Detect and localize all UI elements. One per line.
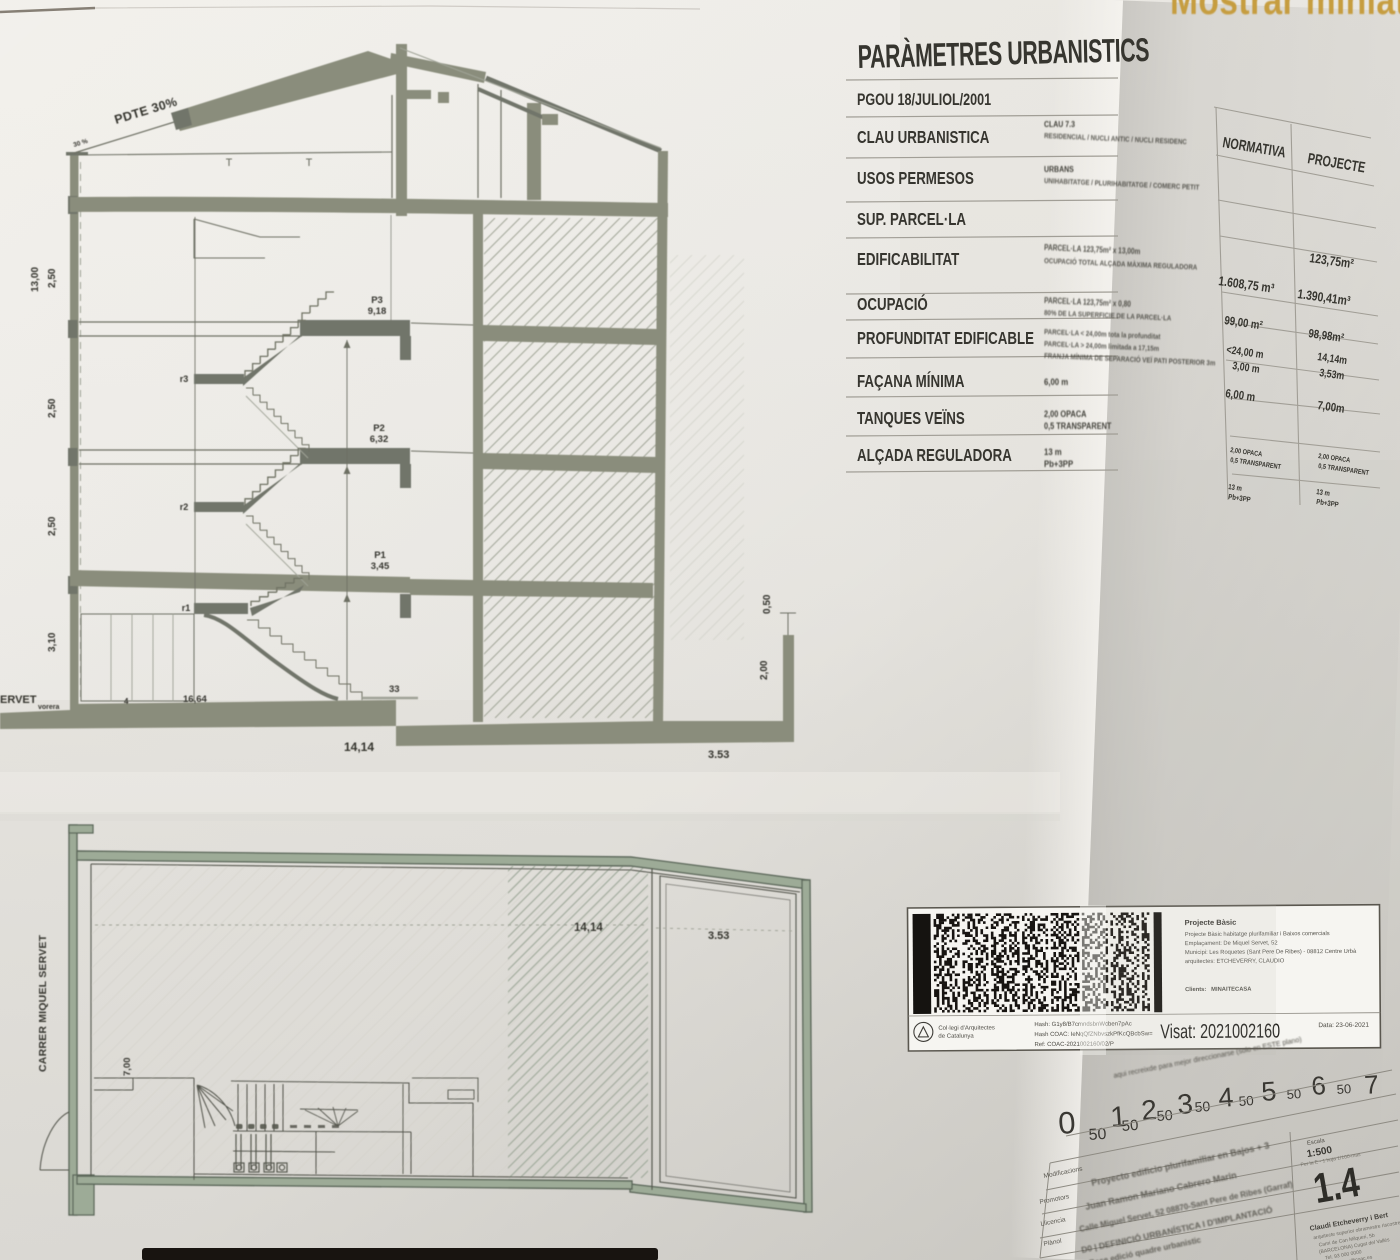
svg-text:P1: P1 xyxy=(374,550,386,561)
svg-text:OCUPACIÓ: OCUPACIÓ xyxy=(857,293,928,315)
svg-text:CLAU 7.3: CLAU 7.3 xyxy=(1044,119,1076,129)
svg-text:7,00: 7,00 xyxy=(122,1058,133,1077)
svg-text:SUP. PARCEL·LA: SUP. PARCEL·LA xyxy=(857,210,966,229)
svg-text:33: 33 xyxy=(389,684,400,695)
svg-text:Pb+3PP: Pb+3PP xyxy=(1044,458,1073,469)
svg-text:EDIFICABILITAT: EDIFICABILITAT xyxy=(857,250,960,269)
svg-text:14,14: 14,14 xyxy=(344,740,374,754)
svg-text:2,00 OPACA: 2,00 OPACA xyxy=(1044,409,1087,419)
svg-text:2,50: 2,50 xyxy=(47,516,58,536)
svg-text:16,64: 16,64 xyxy=(183,694,207,705)
svg-text:r2: r2 xyxy=(180,502,189,512)
svg-text:3: 3 xyxy=(1176,1088,1194,1120)
svg-text:6,00 m: 6,00 m xyxy=(1044,376,1068,387)
svg-text:Mostrar miniatu: Mostrar miniatu xyxy=(1170,0,1400,24)
svg-text:PROFUNDITAT EDIFICABLE: PROFUNDITAT EDIFICABLE xyxy=(857,329,1034,348)
svg-text:6,32: 6,32 xyxy=(370,434,389,445)
svg-text:ERVET: ERVET xyxy=(0,694,37,706)
svg-text:0,5 TRANSPARENT: 0,5 TRANSPARENT xyxy=(1044,421,1111,431)
svg-text:P3: P3 xyxy=(371,295,383,306)
svg-text:3,45: 3,45 xyxy=(371,561,390,572)
svg-text:2,00: 2,00 xyxy=(759,660,770,680)
svg-text:vorera: vorera xyxy=(38,704,60,711)
svg-text:FAÇANA MÍNIMA: FAÇANA MÍNIMA xyxy=(857,370,965,392)
svg-text:5: 5 xyxy=(1260,1076,1277,1107)
svg-text:2,50: 2,50 xyxy=(47,268,58,288)
svg-text:13,00: 13,00 xyxy=(30,267,41,292)
svg-text:14,14: 14,14 xyxy=(574,922,603,934)
svg-text:USOS PERMESOS: USOS PERMESOS xyxy=(857,169,974,188)
svg-text:1.4: 1.4 xyxy=(1310,1158,1363,1212)
svg-text:TANQUES VEÏNS: TANQUES VEÏNS xyxy=(857,408,965,428)
svg-text:4: 4 xyxy=(124,697,129,706)
svg-text:Data: 23-06-2021: Data: 23-06-2021 xyxy=(1318,1022,1369,1029)
svg-text:50: 50 xyxy=(1336,1081,1351,1097)
svg-text:Col·legi d'Arquitectes: Col·legi d'Arquitectes xyxy=(938,1025,995,1031)
svg-text:9,18: 9,18 xyxy=(368,306,387,317)
svg-text:PGOU 18/JULIOL/2001: PGOU 18/JULIOL/2001 xyxy=(857,90,991,109)
svg-text:3.53: 3.53 xyxy=(708,749,729,761)
svg-text:0,50: 0,50 xyxy=(762,594,773,614)
svg-text:r1: r1 xyxy=(182,603,191,613)
svg-text:4: 4 xyxy=(1217,1082,1234,1113)
svg-text:P2: P2 xyxy=(373,423,385,434)
svg-text:PARÀMETRES URBANISTICS: PARÀMETRES URBANISTICS xyxy=(857,31,1149,75)
svg-text:URBANS: URBANS xyxy=(1044,164,1074,174)
svg-text:3,10: 3,10 xyxy=(47,632,58,652)
svg-text:CARRER MIQUEL SERVET: CARRER MIQUEL SERVET xyxy=(37,934,49,1072)
svg-text:6: 6 xyxy=(1310,1070,1327,1101)
svg-text:de Catalunya: de Catalunya xyxy=(938,1034,974,1040)
svg-text:2,50: 2,50 xyxy=(47,398,58,418)
svg-text:3.53: 3.53 xyxy=(708,930,729,942)
svg-text:r3: r3 xyxy=(180,374,189,384)
svg-text:13 m: 13 m xyxy=(1044,446,1062,457)
svg-text:50: 50 xyxy=(1121,1117,1139,1135)
svg-text:CLAU URBANISTICA: CLAU URBANISTICA xyxy=(857,128,990,147)
svg-text:ALÇADA REGULADORA: ALÇADA REGULADORA xyxy=(857,446,1012,465)
svg-text:50: 50 xyxy=(1194,1098,1211,1115)
